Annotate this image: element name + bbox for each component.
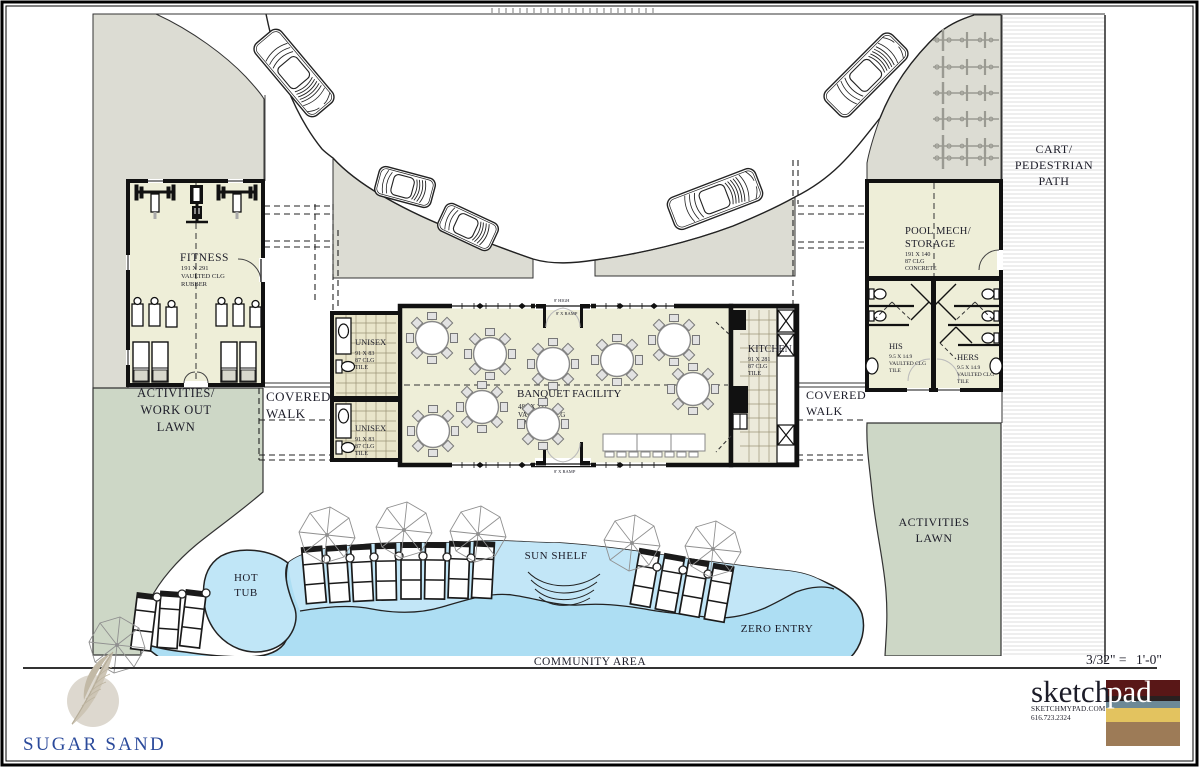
svg-text:ACTIVITIES: ACTIVITIES — [899, 515, 970, 529]
svg-text:pad: pad — [1107, 674, 1152, 709]
svg-text:TILE: TILE — [748, 371, 761, 377]
svg-text:STORAGE: STORAGE — [905, 239, 955, 250]
svg-text:ZERO ENTRY: ZERO ENTRY — [741, 623, 814, 635]
svg-text:LAWN: LAWN — [915, 531, 952, 545]
svg-text:RUBBER: RUBBER — [181, 281, 208, 288]
svg-text:191 X 140: 191 X 140 — [905, 252, 930, 258]
svg-text:87 CLG: 87 CLG — [748, 364, 768, 370]
svg-text:9.5 X 14.9: 9.5 X 14.9 — [957, 365, 980, 371]
svg-text:91 X 83: 91 X 83 — [355, 437, 374, 443]
svg-text:CONCRETE: CONCRETE — [905, 266, 937, 272]
svg-text:VAULTED CLG: VAULTED CLG — [957, 372, 994, 378]
svg-text:UNISEX: UNISEX — [355, 423, 386, 433]
svg-text:8' X RAMP: 8' X RAMP — [556, 311, 578, 316]
svg-text:PEDESTRIAN: PEDESTRIAN — [1015, 158, 1093, 172]
svg-text:COVERED: COVERED — [806, 388, 866, 402]
svg-text:616.723.2324: 616.723.2324 — [1031, 714, 1071, 722]
svg-text:TILE: TILE — [957, 379, 970, 385]
svg-text:sketch: sketch — [1031, 674, 1111, 709]
svg-text:LAWN: LAWN — [157, 420, 196, 434]
svg-text:3/32" =: 3/32" = — [1086, 652, 1127, 667]
svg-text:91 X 83: 91 X 83 — [355, 351, 374, 357]
svg-text:TILE: TILE — [889, 368, 902, 374]
svg-text:87 CLG: 87 CLG — [905, 259, 925, 265]
svg-text:TILE: TILE — [355, 451, 368, 457]
svg-text:HERS: HERS — [957, 352, 979, 362]
svg-text:SUGAR SAND: SUGAR SAND — [23, 734, 166, 755]
svg-text:87 CLG: 87 CLG — [355, 444, 375, 450]
svg-text:ACTIVITIES/: ACTIVITIES/ — [137, 386, 215, 400]
svg-text:TUB: TUB — [234, 587, 258, 599]
svg-text:UNISEX: UNISEX — [355, 337, 386, 347]
svg-text:BANQUET FACILITY: BANQUET FACILITY — [517, 388, 621, 400]
svg-text:1'-0": 1'-0" — [1136, 652, 1162, 667]
svg-text:WORK OUT: WORK OUT — [140, 403, 211, 417]
svg-text:VAULTED CLG: VAULTED CLG — [181, 273, 225, 280]
svg-text:8' X RAMP: 8' X RAMP — [554, 469, 576, 474]
svg-text:PATH: PATH — [1039, 174, 1070, 188]
svg-text:87 CLG: 87 CLG — [355, 358, 375, 364]
svg-text:FITNESS: FITNESS — [180, 252, 229, 264]
svg-text:191 X 291: 191 X 291 — [181, 265, 208, 272]
svg-text:WALK: WALK — [266, 406, 306, 421]
svg-text:TILE: TILE — [355, 365, 368, 371]
svg-text:KITCHEN: KITCHEN — [748, 344, 792, 355]
svg-text:POOL MECH/: POOL MECH/ — [905, 226, 971, 237]
svg-text:HIS: HIS — [889, 341, 903, 351]
svg-text:COMMUNITY AREA: COMMUNITY AREA — [534, 656, 647, 668]
svg-text:CART/: CART/ — [1035, 142, 1072, 156]
svg-text:9.5 X 14.9: 9.5 X 14.9 — [889, 354, 912, 360]
svg-text:8' HIGH: 8' HIGH — [554, 298, 570, 303]
svg-text:SKETCHMYPAD.COM: SKETCHMYPAD.COM — [1031, 705, 1106, 713]
svg-text:HOT: HOT — [234, 572, 258, 584]
svg-text:SUN SHELF: SUN SHELF — [525, 550, 588, 562]
svg-text:VAULTED CLG: VAULTED CLG — [889, 361, 926, 367]
svg-text:91 X 281: 91 X 281 — [748, 357, 770, 363]
svg-text:WALK: WALK — [806, 404, 843, 418]
svg-text:COVERED: COVERED — [266, 389, 331, 404]
